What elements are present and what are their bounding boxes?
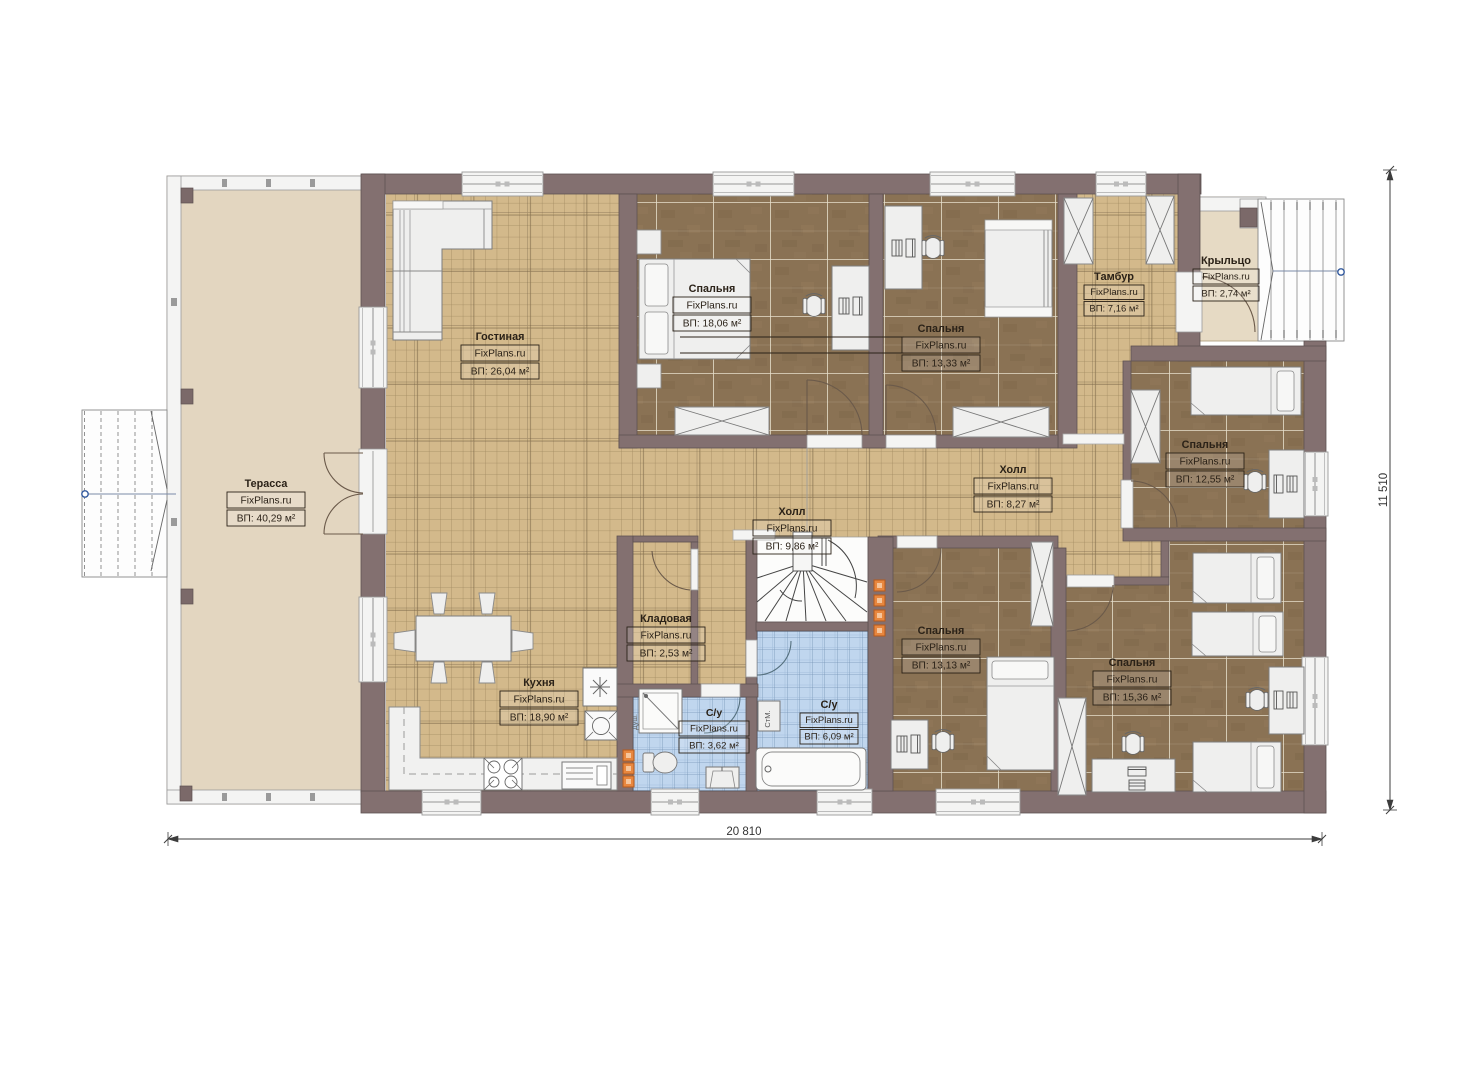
svg-text:Холл: Холл — [999, 464, 1026, 476]
svg-text:FixPlans.ru: FixPlans.ru — [916, 643, 967, 654]
svg-text:ВП: 15,36 м²: ВП: 15,36 м² — [1103, 693, 1162, 704]
svg-text:С/у: С/у — [820, 699, 838, 711]
svg-text:Терасса: Терасса — [245, 478, 289, 490]
svg-text:ВП: 12,55 м²: ВП: 12,55 м² — [1176, 475, 1235, 486]
svg-text:FixPlans.ru: FixPlans.ru — [988, 482, 1039, 493]
svg-text:ВП: 18,90 м²: ВП: 18,90 м² — [510, 713, 569, 724]
svg-text:С/у: С/у — [706, 707, 723, 719]
svg-text:ВП: 26,04 м²: ВП: 26,04 м² — [471, 367, 530, 378]
svg-text:ВП: 3,62 м²: ВП: 3,62 м² — [689, 741, 740, 752]
svg-text:FixPlans.ru: FixPlans.ru — [687, 301, 738, 312]
svg-text:FixPlans.ru: FixPlans.ru — [1202, 272, 1250, 283]
svg-text:FixPlans.ru: FixPlans.ru — [475, 349, 526, 360]
svg-text:Спальня: Спальня — [689, 283, 736, 295]
svg-text:ВП: 8,27 м²: ВП: 8,27 м² — [987, 500, 1040, 511]
svg-text:FixPlans.ru: FixPlans.ru — [641, 631, 692, 642]
svg-text:Крыльцо: Крыльцо — [1201, 255, 1251, 267]
svg-text:Кладовая: Кладовая — [640, 613, 692, 625]
svg-text:FixPlans.ru: FixPlans.ru — [514, 695, 565, 706]
svg-text:Гостиная: Гостиная — [476, 331, 525, 343]
svg-text:ВП: 6,09 м²: ВП: 6,09 м² — [804, 732, 853, 743]
svg-text:FixPlans.ru: FixPlans.ru — [241, 496, 292, 507]
svg-text:Спальня: Спальня — [1109, 657, 1156, 669]
svg-text:Спальня: Спальня — [918, 625, 965, 637]
svg-text:СтМ.: СтМ. — [763, 710, 772, 727]
svg-text:Холл: Холл — [778, 506, 805, 518]
svg-text:Кухня: Кухня — [523, 677, 555, 689]
svg-text:FixPlans.ru: FixPlans.ru — [690, 724, 738, 735]
svg-text:ВП: 2,53 м²: ВП: 2,53 м² — [640, 649, 693, 660]
svg-text:ВП: 7,16 м²: ВП: 7,16 м² — [1089, 304, 1138, 315]
svg-text:ВП: 9,86 м²: ВП: 9,86 м² — [766, 542, 819, 553]
svg-text:Тамбур: Тамбур — [1094, 271, 1134, 283]
svg-text:ВП: 40,29 м²: ВП: 40,29 м² — [237, 514, 296, 525]
svg-text:FixPlans.ru: FixPlans.ru — [1090, 287, 1138, 298]
svg-text:Спальня: Спальня — [1182, 439, 1229, 451]
svg-text:ВП: 13,13 м²: ВП: 13,13 м² — [912, 661, 971, 672]
svg-text:11 510: 11 510 — [1378, 473, 1390, 507]
svg-text:20 810: 20 810 — [726, 826, 761, 838]
svg-text:FixPlans.ru: FixPlans.ru — [805, 715, 853, 726]
svg-text:FixPlans.ru: FixPlans.ru — [916, 341, 967, 352]
svg-text:Спальня: Спальня — [918, 323, 965, 335]
svg-text:FixPlans.ru: FixPlans.ru — [1180, 457, 1231, 468]
svg-text:ВП: 13,33 м²: ВП: 13,33 м² — [912, 359, 971, 370]
svg-text:FixPlans.ru: FixPlans.ru — [767, 524, 818, 535]
svg-text:ВП: 2,74 м²: ВП: 2,74 м² — [1201, 289, 1250, 300]
svg-text:FixPlans.ru: FixPlans.ru — [1107, 675, 1158, 686]
svg-text:Душ.: Душ. — [632, 714, 639, 730]
svg-text:ВП: 18,06 м²: ВП: 18,06 м² — [683, 319, 742, 330]
